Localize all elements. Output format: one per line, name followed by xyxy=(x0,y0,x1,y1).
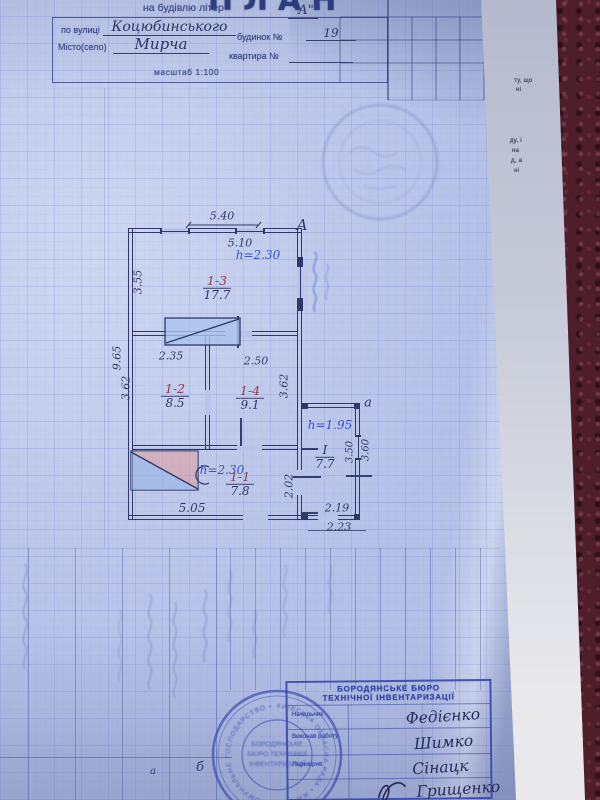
dim-right-lower: 2.02 xyxy=(283,474,296,499)
room-1-1: 1-1 7.8 xyxy=(226,470,254,498)
printed-fragment: ні xyxy=(516,87,521,93)
subtitle-label: на будівлю літер xyxy=(143,2,224,14)
signature-name: Сінацк xyxy=(412,757,469,779)
city-value: Мирча xyxy=(113,35,209,54)
house-label: будинок № xyxy=(237,32,283,42)
room-1-4: 1-4 9.1 xyxy=(236,384,264,412)
bureau-stamp: БОРОДЯНСЬКЕ БЮРО ТЕХНІЧНОЇ ІНВЕНТАРИЗАЦІ… xyxy=(285,679,492,800)
header-grid xyxy=(336,0,492,106)
signature-name: Федієнко xyxy=(405,705,480,728)
dim-annex-bottom-outer: 2.23 xyxy=(327,521,352,534)
signature-name: Шимко xyxy=(414,732,474,754)
dim-bottom-inner: 5.05 xyxy=(179,501,206,515)
room-area: 7.7 xyxy=(315,458,334,471)
dim-annex-right-inner: 3.50 xyxy=(345,441,356,463)
room-area: 17.7 xyxy=(203,289,231,302)
room-number: І xyxy=(315,443,334,458)
scale-label: масштаб 1:100 xyxy=(154,67,219,77)
role-label: Начальник xyxy=(292,710,347,718)
role-label: Виконав роботу xyxy=(292,732,347,740)
pencil-scribble xyxy=(314,252,329,312)
room-annex: І 7.7 xyxy=(315,443,334,471)
dim-annex-right-outer: 3.60 xyxy=(361,439,372,461)
annex-letter: а xyxy=(364,396,372,411)
stamp-rule xyxy=(288,753,490,756)
dim-right-middle: 3.62 xyxy=(278,374,291,399)
city-label: Місто(село) xyxy=(58,42,107,52)
faint-round-stamp xyxy=(318,100,442,224)
room-area: 9.1 xyxy=(236,399,264,412)
dim-annex-bottom-inner: 2.19 xyxy=(325,502,350,515)
apartment-label: квартира № xyxy=(229,51,279,61)
main-building-letter: А xyxy=(296,216,307,234)
room-1-3: 1-3 17.7 xyxy=(203,274,231,302)
height-room-1-3: h=2.30 xyxy=(236,248,281,262)
signature-flourish xyxy=(372,776,412,800)
dim-left-middle: 3.62 xyxy=(120,376,133,401)
stamp-rule xyxy=(348,704,350,798)
street-label: по вулиці xyxy=(61,25,100,35)
form-left-rule xyxy=(104,88,105,548)
dim-left-outer: 9.65 xyxy=(111,346,124,371)
stamp-rule xyxy=(288,727,490,730)
printed-fragment: ду, і xyxy=(510,138,522,144)
role-label: Перевірив xyxy=(292,760,347,768)
dim-partition-right: 2.50 xyxy=(244,355,269,368)
floor-plan: А 5.40 5.10 h=2.30 1-3 17.7 3.55 9.65 2.… xyxy=(110,212,395,552)
dim-partition-left: 2.35 xyxy=(159,350,184,363)
printed-fragment: на xyxy=(512,148,519,154)
photo-floor-plan-document: ту, що ні ду, і на д, а ні ПЛАН на будів… xyxy=(0,0,600,800)
room-number: 1-2 xyxy=(161,382,189,397)
dim-top-outer: 5.40 xyxy=(210,210,235,223)
printed-fragment: ні xyxy=(514,168,519,174)
street-value: Коцюбинського xyxy=(103,19,236,36)
room-number: 1-3 xyxy=(203,274,231,289)
bureau-name-line2: ТЕХНІЧНОЇ ІНВЕНТАРИЗАЦІЇ xyxy=(288,692,490,703)
height-annex: h=1.95 xyxy=(308,418,353,432)
document-title: ПЛАН xyxy=(208,0,346,18)
table-rule xyxy=(0,548,500,549)
dim-left-upper: 3.55 xyxy=(132,270,145,295)
signature-name: Грищенко xyxy=(416,778,501,800)
printed-fragment: ту, що xyxy=(514,78,533,84)
room-area: 7.8 xyxy=(226,485,254,498)
room-number: 1-4 xyxy=(236,384,264,399)
room-area: 8.5 xyxy=(161,397,189,410)
room-1-2: 1-2 8.5 xyxy=(161,382,189,410)
printed-fragment: д, а xyxy=(511,158,522,164)
room-number: 1-1 xyxy=(226,470,254,485)
